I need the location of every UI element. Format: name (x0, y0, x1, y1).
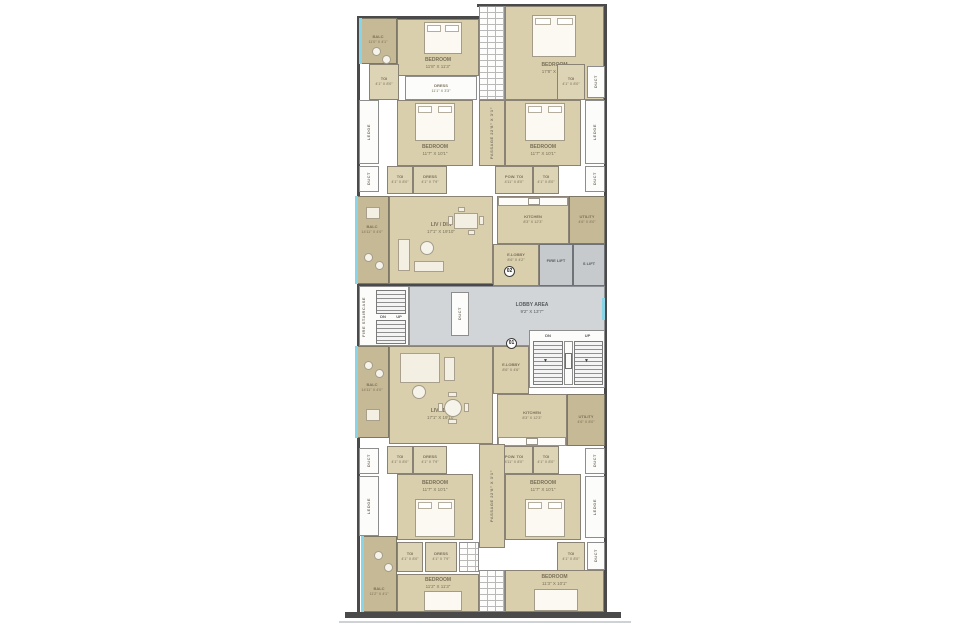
bed-icon (525, 103, 565, 141)
pillow-icon (418, 502, 432, 509)
room-label: TOI4'1" X 8'0" (534, 175, 558, 184)
room-toilet: TOI4'1" X 8'0" (533, 446, 559, 474)
room-label: BEDROOM11'7" X 10'1" (506, 481, 580, 492)
floor-plan-canvas: BALC11'0" X 4'1" BEDROOM11'8" X 11'3" BE… (0, 0, 957, 625)
window-glazing (355, 196, 358, 284)
passage-label: PASSAGE 22'8" X 3'1" (490, 470, 494, 522)
duct-shaft: DUCT (451, 292, 469, 336)
pillow-icon (528, 502, 542, 509)
ledge-label: LEDGE (593, 124, 597, 140)
room-toilet: TOI4'1" X 8'0" (557, 64, 585, 100)
dining-chair-icon (479, 216, 484, 225)
room-dress: DRESS4'1" X 7'9" (413, 166, 447, 194)
unit-number-badge: 01 (506, 338, 517, 349)
balcony-chair-icon (372, 47, 381, 56)
room-kitchen-bottom: KITCHEN8'3" X 12'3" (497, 394, 567, 446)
dining-chair-icon (448, 216, 453, 225)
fire-staircase-label: FIRE STAIRCASE (362, 291, 366, 343)
balcony-chair-icon (364, 253, 373, 262)
duct-label: DUCT (594, 549, 598, 562)
ledge-label: LEDGE (367, 498, 371, 514)
down-arrow-icon: ▼ (584, 359, 589, 364)
room-label: DRESS11'1" X 3'3" (406, 84, 476, 93)
stair-treads (533, 341, 563, 385)
bed-icon (525, 499, 565, 537)
pillow-icon (427, 25, 441, 32)
dining-chair-icon (448, 419, 457, 424)
ledge-shaft: LEDGE (585, 476, 605, 538)
duct-shaft: DUCT (587, 66, 605, 98)
floor-plan: BALC11'0" X 4'1" BEDROOM11'8" X 11'3" BE… (353, 4, 611, 620)
duct-label: DUCT (367, 172, 371, 185)
stair-treads (376, 320, 406, 344)
room-bedroom-bottom-left: BEDROOM11'2" X 11'3" (397, 574, 479, 612)
pillow-icon (438, 502, 452, 509)
room-label: UTILITY4'6" X 8'0" (568, 415, 604, 424)
kitchen-sink-icon (528, 198, 540, 205)
room-label: LOBBY AREA9'2" X 13'7" (470, 303, 594, 314)
stair-dn-label: DN (376, 314, 390, 319)
room-label: DRESS4'1" X 7'9" (426, 552, 456, 561)
room-utility-top: UTILITY4'6" X 8'0" (569, 196, 605, 244)
room-label: TOI4'1" X 8'0" (398, 552, 422, 561)
ground-line (345, 612, 621, 618)
duct-label: DUCT (367, 454, 371, 467)
pillow-icon (528, 106, 542, 113)
dining-chair-icon (438, 403, 443, 412)
room-toilet: TOI4'1" X 8'0" (533, 166, 559, 194)
room-entrance-lobby-top: E.LOBBY8'6" X 4'2" (493, 244, 539, 286)
room-toilet: TOI4'1" X 8'0" (397, 542, 423, 572)
window-glazing (602, 298, 605, 320)
pillow-icon (418, 106, 432, 113)
room-label: E.LOBBY8'6" X 4'6" (494, 363, 528, 372)
ledge-label: LEDGE (367, 124, 371, 140)
unit-number-badge: 02 (504, 266, 515, 277)
balcony-chair-icon (364, 361, 373, 370)
wardrobe-strip (459, 542, 479, 572)
wardrobe-strip (479, 6, 505, 100)
pillow-icon (548, 106, 562, 113)
room-dress: DRESS4'1" X 7'9" (425, 542, 457, 572)
balcony-table-icon (366, 207, 380, 219)
balcony-table-icon (366, 409, 380, 421)
bed-icon (415, 499, 455, 537)
room-label: BEDROOM11'7" X 10'1" (398, 145, 472, 156)
bed-icon (424, 591, 462, 611)
pillow-icon (548, 502, 562, 509)
stair-up-label: UP (572, 333, 603, 338)
ledge-shaft: LEDGE (359, 476, 379, 536)
room-label: TOI4'1" X 8'0" (534, 455, 558, 464)
window-glazing (361, 536, 364, 612)
room-label: BEDROOM11'7" X 10'1" (506, 145, 580, 156)
dining-chair-icon (448, 392, 457, 397)
dining-chair-icon (464, 403, 469, 412)
room-bedroom-bottom-mid-right: BEDROOM11'7" X 10'1" (505, 474, 581, 540)
bed-icon (534, 589, 578, 611)
fire-staircase: FIRE STAIRCASE DN UP (359, 286, 409, 346)
ledge-label: LEDGE (593, 499, 597, 515)
balcony-chair-icon (375, 261, 384, 270)
room-toilet: TOI4'1" X 8'0" (369, 64, 399, 100)
room-label: POW. TOI4'11" X 8'0" (496, 175, 532, 184)
duct-shaft: DUCT (585, 448, 605, 474)
ledge-shaft: LEDGE (585, 100, 605, 164)
room-toilet: TOI4'1" X 8'0" (557, 542, 585, 572)
kitchen-sink-icon (526, 438, 538, 445)
pillow-icon (557, 18, 573, 25)
duct-shaft: DUCT (587, 542, 605, 570)
balcony-chair-icon (374, 551, 383, 560)
room-living-dining-bottom: LIV / DIN17'1" X 19'10" (389, 346, 493, 444)
room-label: BEDROOM11'8" X 11'3" (398, 58, 478, 69)
room-label: BALC14'11" X 4'0" (356, 225, 388, 234)
balcony-chair-icon (384, 563, 393, 572)
duct-shaft: DUCT (359, 448, 379, 474)
room-label: DRESS4'1" X 7'9" (414, 455, 446, 464)
room-bedroom-top-left: BEDROOM11'8" X 11'3" (397, 19, 479, 76)
duct-shaft: DUCT (585, 166, 605, 192)
room-bedroom-bottom-mid-left: BEDROOM11'7" X 10'1" (397, 474, 473, 540)
room-balcony-top-left: BALC11'0" X 4'1" (359, 18, 397, 64)
room-powder-toilet: POW. TOI4'11" X 8'0" (495, 166, 533, 194)
room-passage: PASSAGE 22'8" X 3'1" (479, 100, 505, 166)
pillow-icon (438, 106, 452, 113)
room-dress-strip: DRESS11'1" X 3'3" (405, 76, 477, 100)
service-lift: S LIFT (573, 244, 605, 286)
room-label: TOI4'1" X 8'0" (558, 552, 584, 561)
rug-icon (412, 385, 426, 399)
fire-lift: FIRE LIFT (539, 244, 573, 286)
stair-up-label: UP (392, 314, 406, 319)
room-bedroom-mid-right: BEDROOM11'7" X 10'1" (505, 100, 581, 166)
sofa-icon (414, 261, 444, 272)
room-balcony-living-bottom: BALC14'11" X 4'0" (355, 346, 389, 438)
room-toilet: TOI4'1" X 8'0" (387, 446, 413, 474)
rug-icon (420, 241, 434, 255)
wardrobe-strip (479, 570, 505, 612)
room-utility-bottom: UTILITY4'6" X 8'0" (567, 394, 605, 446)
room-label: BEDROOM11'3" X 10'1" (506, 575, 603, 586)
stair-dn-label: DN (532, 333, 564, 338)
duct-label: DUCT (593, 454, 597, 467)
room-kitchen-top: KITCHEN8'3" X 12'3" (497, 196, 569, 244)
room-bedroom-bottom-right: BEDROOM11'3" X 10'1" (505, 570, 604, 612)
room-bedroom-mid-left: BEDROOM11'7" X 10'1" (397, 100, 473, 166)
room-living-dining-top: LIV / DIN17'1" X 19'10" (389, 196, 493, 284)
bed-icon (424, 22, 462, 54)
stair-landing-rail (565, 353, 572, 369)
window-glazing (359, 18, 362, 64)
dining-chair-icon (458, 207, 465, 212)
room-label: TOI4'1" X 8'0" (558, 77, 584, 86)
room-label: BALC14'11" X 4'0" (356, 383, 388, 392)
dining-table-icon (454, 213, 478, 229)
sofa-icon (400, 353, 440, 383)
sofa-icon (444, 357, 455, 381)
ground-shadow-line (339, 621, 631, 623)
room-label: BALC11'0" X 4'1" (360, 35, 396, 44)
room-label: KITCHEN8'3" X 12'3" (498, 411, 566, 420)
room-label: TOI4'1" X 8'0" (388, 455, 412, 464)
room-toilet: TOI4'1" X 8'0" (387, 166, 413, 194)
bed-icon (415, 103, 455, 141)
dining-chair-icon (468, 230, 475, 235)
dining-table-icon (444, 399, 462, 417)
duct-shaft: DUCT (359, 166, 379, 192)
room-label: BALC11'2" X 4'1" (362, 587, 396, 596)
room-label: TOI4'1" X 8'0" (388, 175, 412, 184)
room-label: BEDROOM11'2" X 11'3" (398, 578, 478, 589)
down-arrow-icon: ▼ (543, 359, 548, 364)
pillow-icon (445, 25, 459, 32)
balcony-chair-icon (382, 55, 391, 64)
sofa-icon (398, 239, 410, 271)
duct-label: DUCT (458, 307, 462, 320)
balcony-chair-icon (375, 369, 384, 378)
ledge-shaft: LEDGE (359, 100, 379, 164)
room-passage: PASSAGE 22'8" X 3'1" (479, 444, 505, 548)
room-entrance-lobby-bottom: E.LOBBY8'6" X 4'6" (493, 346, 529, 394)
room-label: E.LOBBY8'6" X 4'2" (494, 253, 538, 262)
room-dress: DRESS4'1" X 7'9" (413, 446, 447, 474)
room-label: DRESS4'1" X 7'9" (414, 175, 446, 184)
main-staircase: DN UP ▼ ▼ (529, 330, 605, 388)
service-lift-label: S LIFT (574, 262, 604, 267)
stair-treads (376, 290, 406, 314)
window-glazing (355, 346, 358, 438)
room-label: UTILITY4'6" X 8'0" (570, 215, 604, 224)
duct-label: DUCT (593, 172, 597, 185)
bed-icon (532, 15, 576, 57)
room-label: KITCHEN8'3" X 12'3" (498, 215, 568, 224)
duct-label: DUCT (594, 75, 598, 88)
fire-lift-label: FIRE LIFT (540, 259, 572, 264)
passage-label: PASSAGE 22'8" X 3'1" (490, 107, 494, 159)
room-label: TOI4'1" X 8'0" (370, 77, 398, 86)
pillow-icon (535, 18, 551, 25)
room-label: BEDROOM11'7" X 10'1" (398, 481, 472, 492)
room-balcony-bottom: BALC11'2" X 4'1" (361, 536, 397, 612)
room-balcony-living-top: BALC14'11" X 4'0" (355, 196, 389, 284)
